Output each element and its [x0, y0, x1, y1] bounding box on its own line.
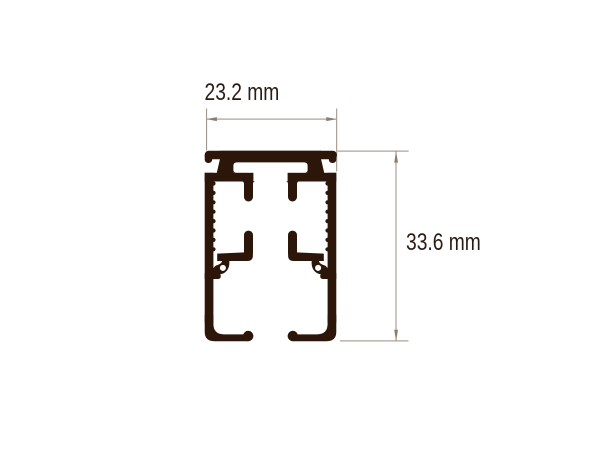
svg-text:23.2 mm: 23.2 mm — [205, 79, 280, 105]
svg-text:33.6 mm: 33.6 mm — [406, 229, 481, 255]
